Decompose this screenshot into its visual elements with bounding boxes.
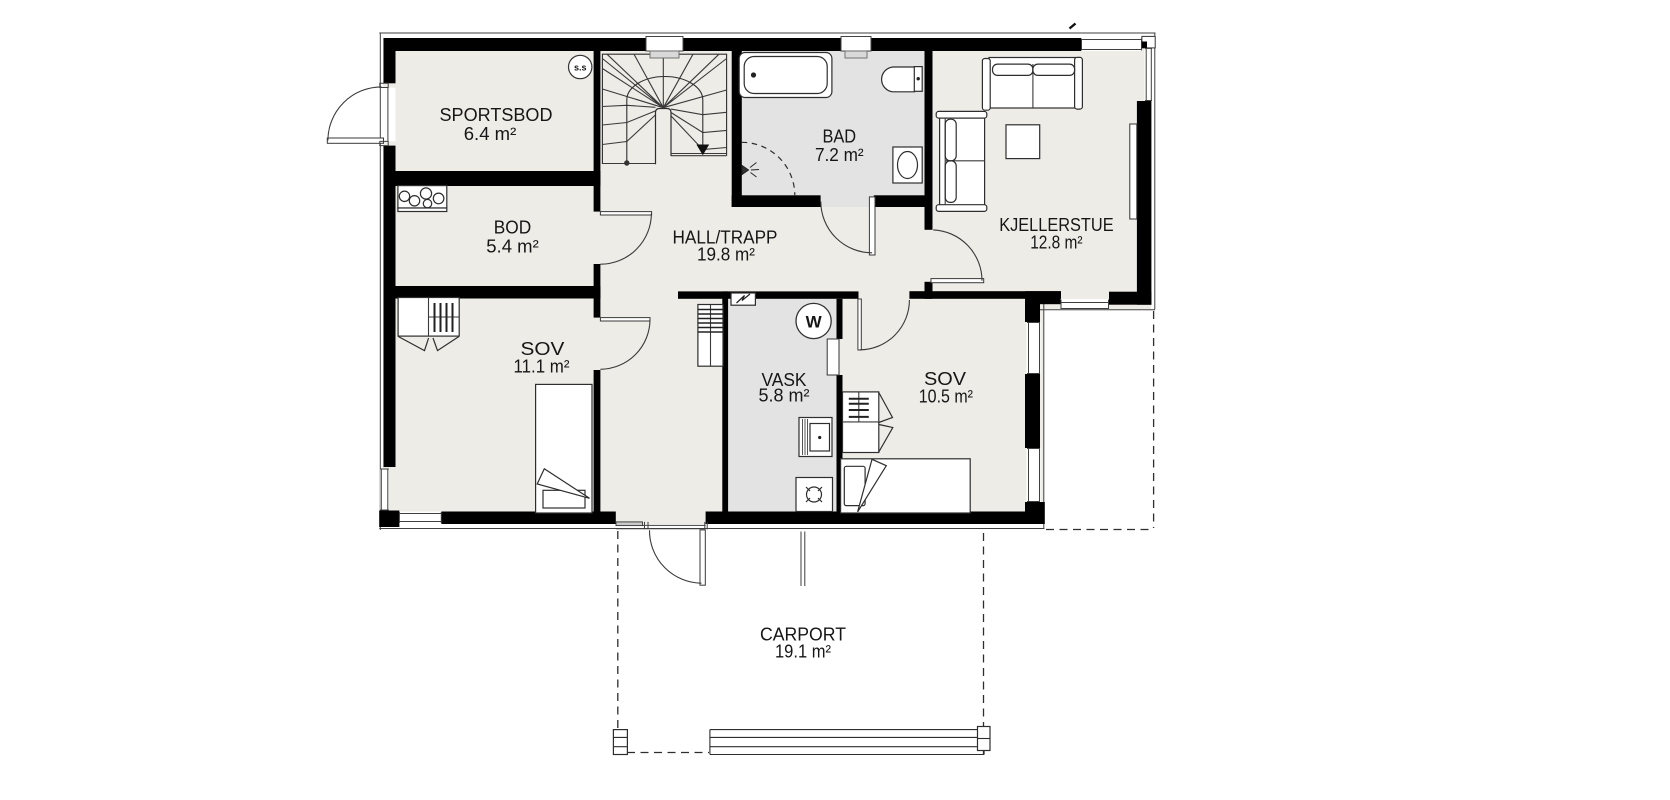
svg-text:5.8 m²: 5.8 m²	[759, 386, 810, 406]
svg-text:6.4 m²: 6.4 m²	[464, 124, 517, 144]
svg-text:12.8 m²: 12.8 m²	[1030, 233, 1082, 253]
svg-text:BOD: BOD	[494, 218, 532, 238]
svg-text:11.1 m²: 11.1 m²	[514, 357, 570, 377]
svg-text:BAD: BAD	[822, 127, 856, 147]
svg-text:7.2 m²: 7.2 m²	[815, 145, 864, 165]
svg-text:19.1 m²: 19.1 m²	[775, 642, 831, 662]
svg-text:19.8 m²: 19.8 m²	[697, 245, 755, 265]
svg-text:SPORTSBOD: SPORTSBOD	[440, 105, 553, 125]
svg-text:W: W	[806, 313, 823, 332]
svg-text:s.s: s.s	[574, 63, 587, 73]
svg-text:10.5 m²: 10.5 m²	[919, 387, 973, 407]
svg-text:5.4 m²: 5.4 m²	[486, 237, 539, 257]
